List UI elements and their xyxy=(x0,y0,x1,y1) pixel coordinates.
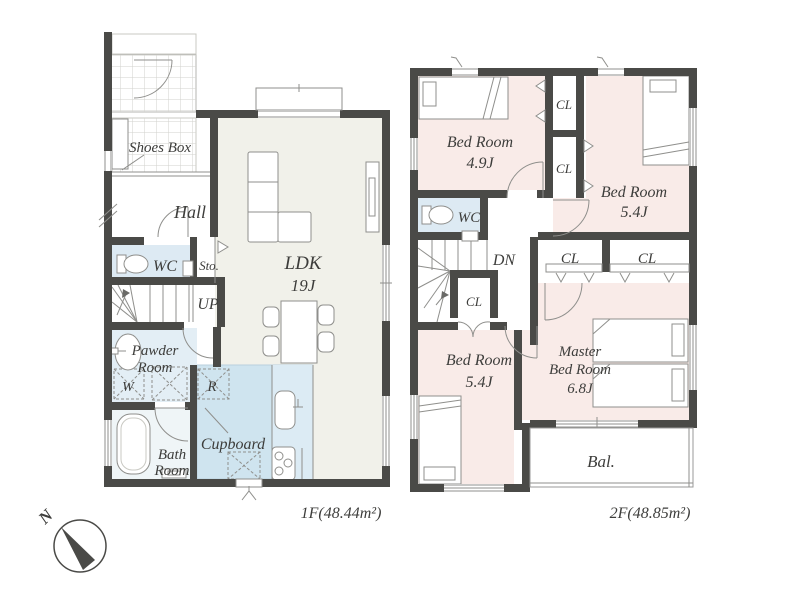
room-label-bedroom2-2: 5.4J xyxy=(620,204,648,221)
window xyxy=(410,395,418,439)
window xyxy=(597,57,624,76)
room-label-wc2: WC xyxy=(458,210,481,226)
label-washer: W xyxy=(122,380,135,395)
tv xyxy=(369,178,375,216)
toilet-icon xyxy=(422,206,453,224)
dining-chair xyxy=(263,336,279,356)
window xyxy=(410,138,418,170)
bathtub xyxy=(117,414,150,474)
compass: N xyxy=(34,505,106,572)
room-label-shoes-box: Shoes Box xyxy=(129,140,191,156)
room-label-powder-1: Pawder xyxy=(131,343,179,359)
label-refrigerator: R xyxy=(206,379,216,395)
dining-chair xyxy=(318,332,334,352)
stairs-label-dn: DN xyxy=(492,252,517,269)
room-label-master-2: Bed Room xyxy=(549,362,611,378)
wc2-door xyxy=(462,231,478,241)
room-label-hall: Hall xyxy=(173,202,206,222)
window xyxy=(104,420,112,466)
floor1-area-label: 1F(48.44m²) xyxy=(301,505,382,522)
room-label-bedroom3-2: 5.4J xyxy=(465,374,493,391)
compass-north-label: N xyxy=(34,505,57,528)
window xyxy=(689,108,697,166)
room-label-bedroom1-2: 4.9J xyxy=(466,155,494,172)
room-label-bedroom3-1: Bed Room xyxy=(446,352,512,369)
bed xyxy=(643,76,689,165)
room-label-storage: Sto. xyxy=(199,258,219,273)
floor-plan-drawing: Shoes Box Hall WC Sto. UP Pawder Room W … xyxy=(0,0,800,601)
stairs-label-up: UP xyxy=(197,296,219,313)
window xyxy=(382,396,390,466)
room-label-balcony: Bal. xyxy=(587,452,615,471)
room-label-bath-1: Bath xyxy=(158,447,186,463)
window xyxy=(451,57,478,76)
dining-chair xyxy=(263,307,279,327)
porch-canopy xyxy=(112,34,196,54)
room-label-master-3: 6.8J xyxy=(567,381,594,397)
back-door xyxy=(236,479,262,500)
stairs-up xyxy=(112,285,193,322)
floor2-area-label: 2F(48.85m²) xyxy=(610,505,691,522)
room-label-bedroom2-1: Bed Room xyxy=(601,184,667,201)
window xyxy=(689,325,697,390)
floor1-plan: Shoes Box Hall WC Sto. UP Pawder Room W … xyxy=(99,32,392,522)
bay-window xyxy=(256,84,342,118)
room-label-bedroom1-1: Bed Room xyxy=(447,134,513,151)
closet-label-3: CL xyxy=(466,294,482,309)
closet-label-4: CL xyxy=(561,251,579,267)
dining-chair xyxy=(318,305,334,325)
room-label-ldk-2: 19J xyxy=(291,276,317,295)
closet-label-5: CL xyxy=(638,251,656,267)
room-label-bath-2: Room xyxy=(154,463,190,479)
room-label-powder-2: Room xyxy=(137,360,173,376)
room-label-wc: WC xyxy=(153,258,177,275)
shoes-cabinet xyxy=(112,119,128,169)
room-label-cupboard: Cupboard xyxy=(201,436,266,453)
sofa xyxy=(248,152,278,242)
window xyxy=(104,151,112,171)
toilet-icon xyxy=(117,255,148,273)
floor-plan-page: Shoes Box Hall WC Sto. UP Pawder Room W … xyxy=(0,0,800,601)
dining-table xyxy=(281,301,317,363)
bed xyxy=(419,77,508,119)
stairs-arrow xyxy=(122,289,130,298)
bed xyxy=(419,396,461,484)
closet-label-2: CL xyxy=(556,161,572,176)
closet-label-1: CL xyxy=(556,97,572,112)
room-label-ldk-1: LDK xyxy=(284,253,323,274)
floor2-plan: Bed Room 4.9J CL CL Bed Room 5.4J WC DN … xyxy=(410,57,697,522)
kitchen-sink xyxy=(275,391,295,429)
room-label-master-1: Master xyxy=(558,344,602,360)
bed xyxy=(593,319,688,362)
window xyxy=(444,484,504,492)
